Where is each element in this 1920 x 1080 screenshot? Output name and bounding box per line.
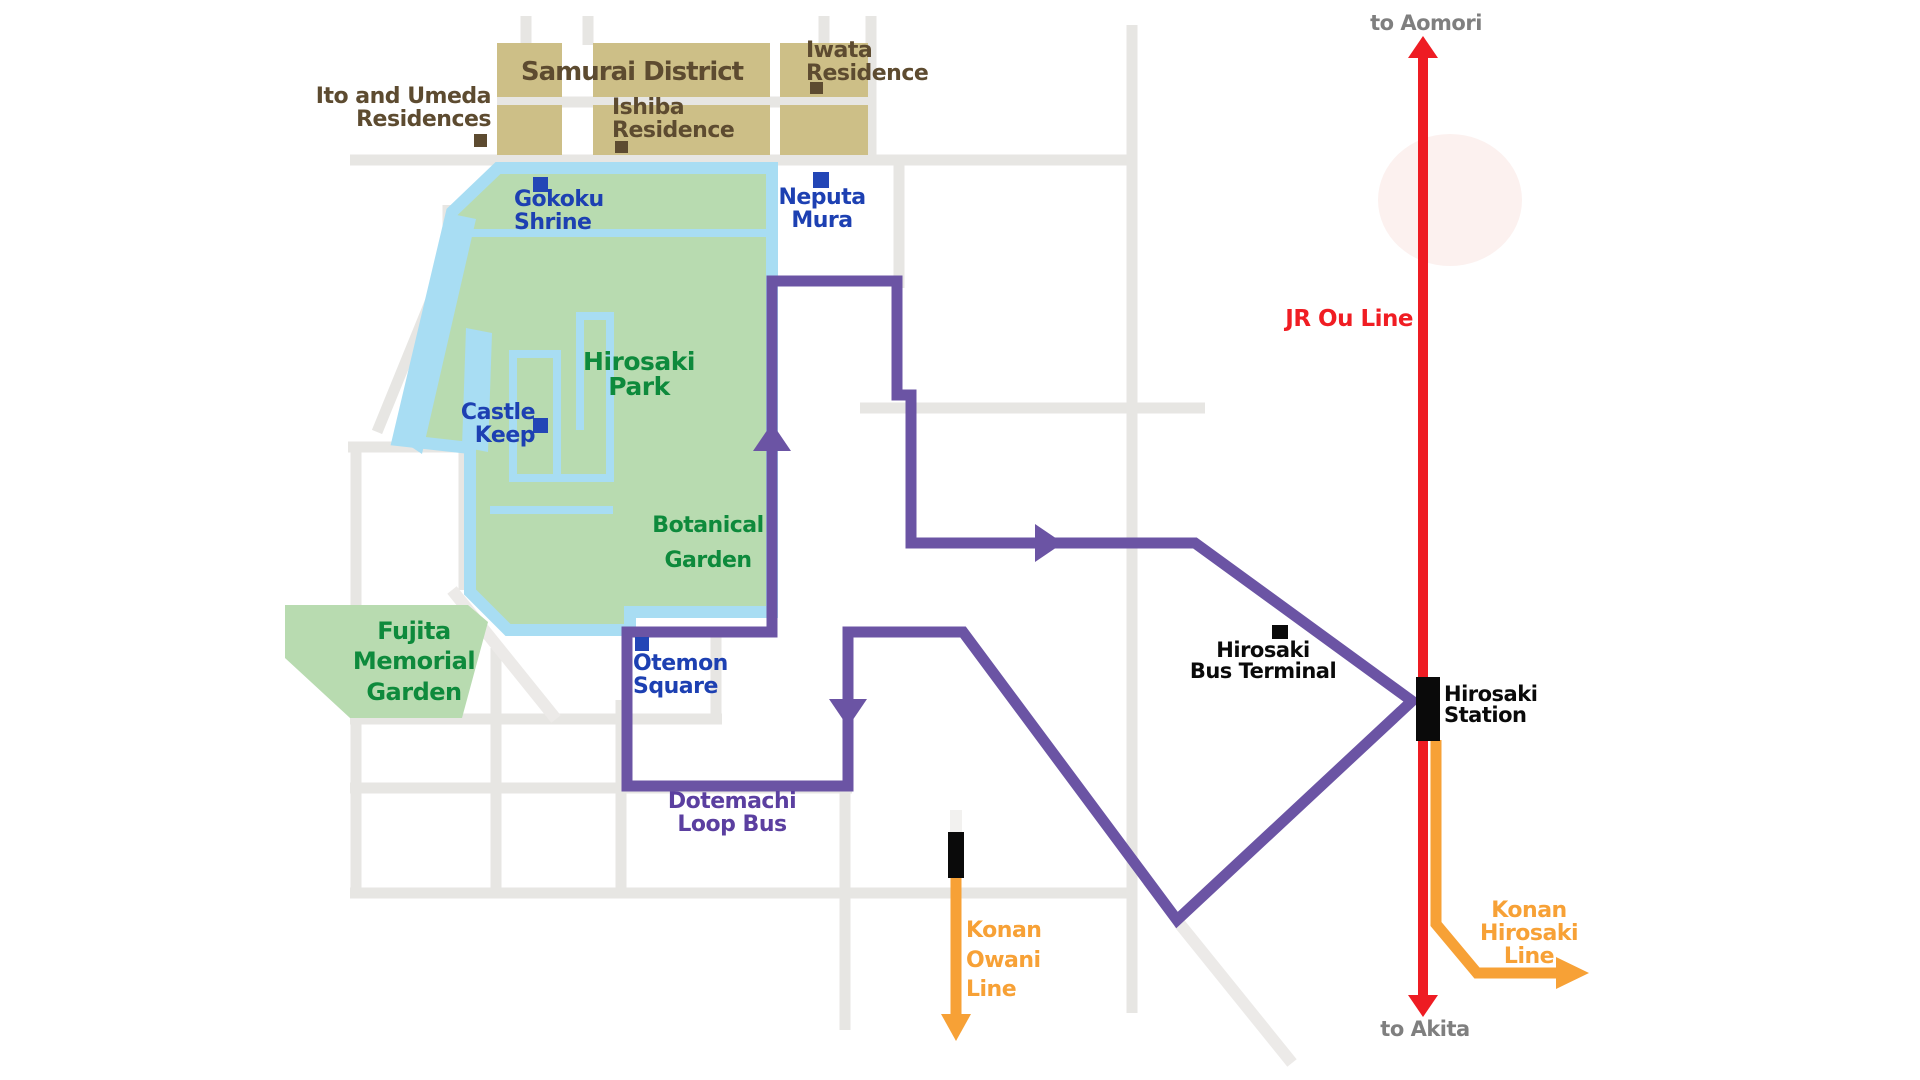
gokoku-shrine-label: Gokoku Shrine bbox=[514, 189, 604, 235]
district-block-6 bbox=[780, 105, 868, 155]
hirosaki-bus-terminal-label: Hirosaki Bus Terminal bbox=[1190, 640, 1336, 682]
hirosaki-park-label: Hirosaki Park bbox=[583, 349, 695, 399]
konan-owani-line-label: Konan Owani Line bbox=[966, 916, 1041, 1005]
dotemachi-loop-bus-label: Dotemachi Loop Bus bbox=[668, 791, 796, 837]
jr-arrow-south bbox=[1408, 995, 1438, 1017]
otemon-square-marker bbox=[635, 637, 649, 651]
samurai-district-label: Samurai District bbox=[521, 59, 743, 86]
owani-station-marker bbox=[948, 832, 964, 878]
ito-umeda-marker bbox=[474, 134, 487, 147]
ishiba-residence-label: Ishiba Residence bbox=[612, 97, 734, 143]
loop-arrow-right bbox=[1035, 524, 1063, 562]
bus-terminal-marker bbox=[1272, 625, 1288, 639]
district-block-4 bbox=[497, 105, 562, 155]
konan-hirosaki-line-label: Konan Hirosaki Line bbox=[1480, 900, 1578, 969]
fujita-memorial-garden-label: Fujita Memorial Garden bbox=[353, 616, 475, 707]
jr-arrow-north bbox=[1408, 36, 1438, 58]
neputa-mura-label: Neputa Mura bbox=[778, 187, 865, 233]
iwata-residence-label: Iwata Residence bbox=[806, 40, 928, 86]
to-akita-label: to Akita bbox=[1380, 1019, 1469, 1041]
faint-watermark bbox=[1378, 134, 1522, 266]
hirosaki-map: Samurai District Ito and Umeda Residence… bbox=[0, 0, 1920, 1080]
hirosaki-station-label: Hirosaki Station bbox=[1444, 684, 1537, 726]
to-aomori-label: to Aomori bbox=[1370, 13, 1482, 35]
castle-keep-marker bbox=[533, 418, 548, 433]
otemon-square-label: Otemon Square bbox=[633, 653, 728, 699]
map-canvas bbox=[0, 0, 1920, 1080]
botanical-garden-label: Botanical Garden bbox=[652, 509, 763, 579]
road-station-diagonal bbox=[1179, 923, 1292, 1063]
jr-ou-line-label: JR Ou Line bbox=[1285, 308, 1413, 332]
ito-umeda-residences-label: Ito and Umeda Residences bbox=[316, 86, 491, 132]
konan-owani-arrow bbox=[941, 1014, 971, 1041]
castle-keep-label: Castle Keep bbox=[461, 402, 535, 448]
hirosaki-station-marker bbox=[1416, 677, 1440, 741]
loop-arrow-down bbox=[829, 699, 867, 727]
